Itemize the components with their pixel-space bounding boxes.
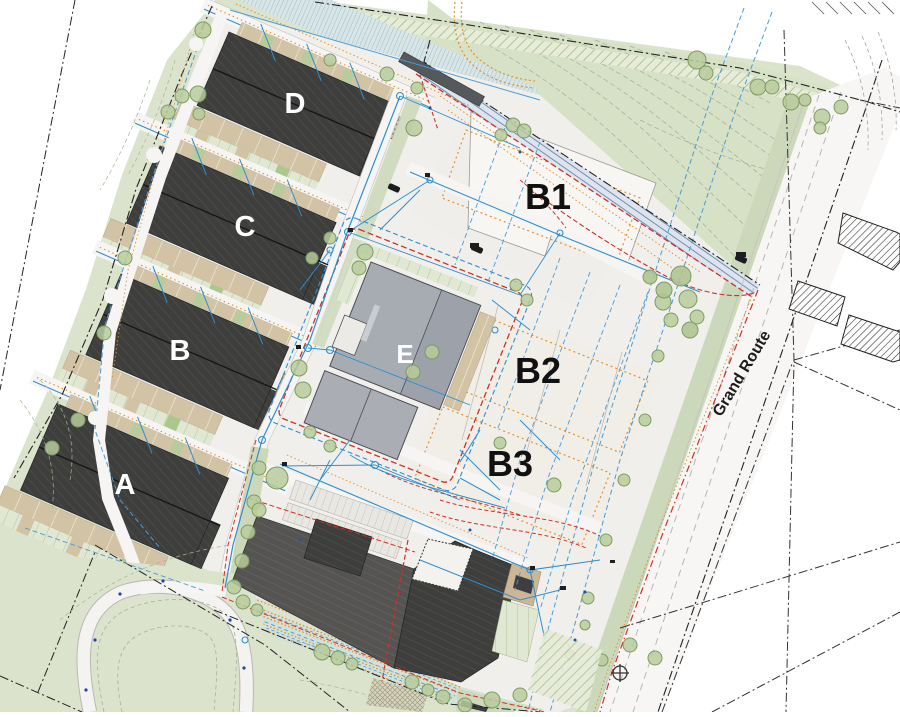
- svg-text:B1: B1: [525, 176, 571, 217]
- svg-text:B: B: [170, 335, 191, 367]
- svg-text:A: A: [115, 469, 136, 501]
- svg-text:C: C: [235, 211, 256, 243]
- svg-text:B3: B3: [487, 443, 533, 484]
- svg-text:E: E: [396, 339, 413, 369]
- svg-text:D: D: [285, 88, 306, 120]
- svg-text:B2: B2: [515, 350, 561, 391]
